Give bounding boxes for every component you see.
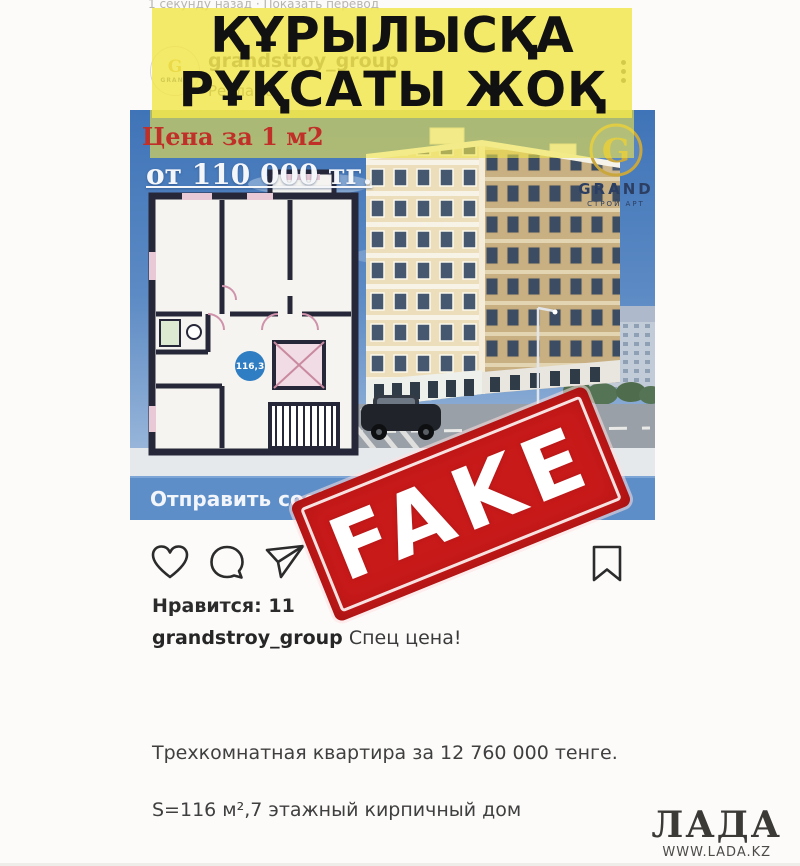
floor-plan: 116,3 <box>149 172 355 452</box>
likes-count: Нравится: 11 <box>152 595 295 617</box>
caption-headline: Спец цена! <box>349 627 462 649</box>
grand-logo-subtitle: СТРОЙ АРТ <box>587 199 645 208</box>
price-value: от 110 000 тг. <box>146 158 372 191</box>
grand-logo-name: GRAND <box>578 180 653 198</box>
caption-paragraph: Отличная планировка для тех кто любит кв… <box>152 814 666 866</box>
caption-line: grandstroy_group Спец цена! <box>152 627 461 649</box>
lada-url: WWW.LADA.KZ <box>652 845 782 860</box>
screenshot-root: 1 секунду назад · Показать перевод G GRA… <box>0 0 800 866</box>
price-per-m2-label: Цена за 1 м2 <box>142 122 324 151</box>
like-icon[interactable] <box>150 544 190 582</box>
comment-icon[interactable] <box>208 544 246 582</box>
banner-line-1: ҚҰРЫЛЫСҚА <box>152 9 632 63</box>
caption-username[interactable]: grandstroy_group <box>152 627 343 649</box>
bookmark-icon[interactable] <box>590 544 624 584</box>
plan-area-label: 116,3 <box>236 362 264 372</box>
no-permit-banner: ҚҰРЫЛЫСҚА РҰҚСАТЫ ЖОҚ <box>152 8 632 118</box>
lada-logo-text: ЛАДА <box>652 807 782 843</box>
banner-line-2: РҰҚСАТЫ ЖОҚ <box>152 63 632 117</box>
building-render <box>366 128 620 408</box>
lada-watermark: ЛАДА WWW.LADA.KZ <box>652 807 782 860</box>
share-icon[interactable] <box>264 544 306 582</box>
